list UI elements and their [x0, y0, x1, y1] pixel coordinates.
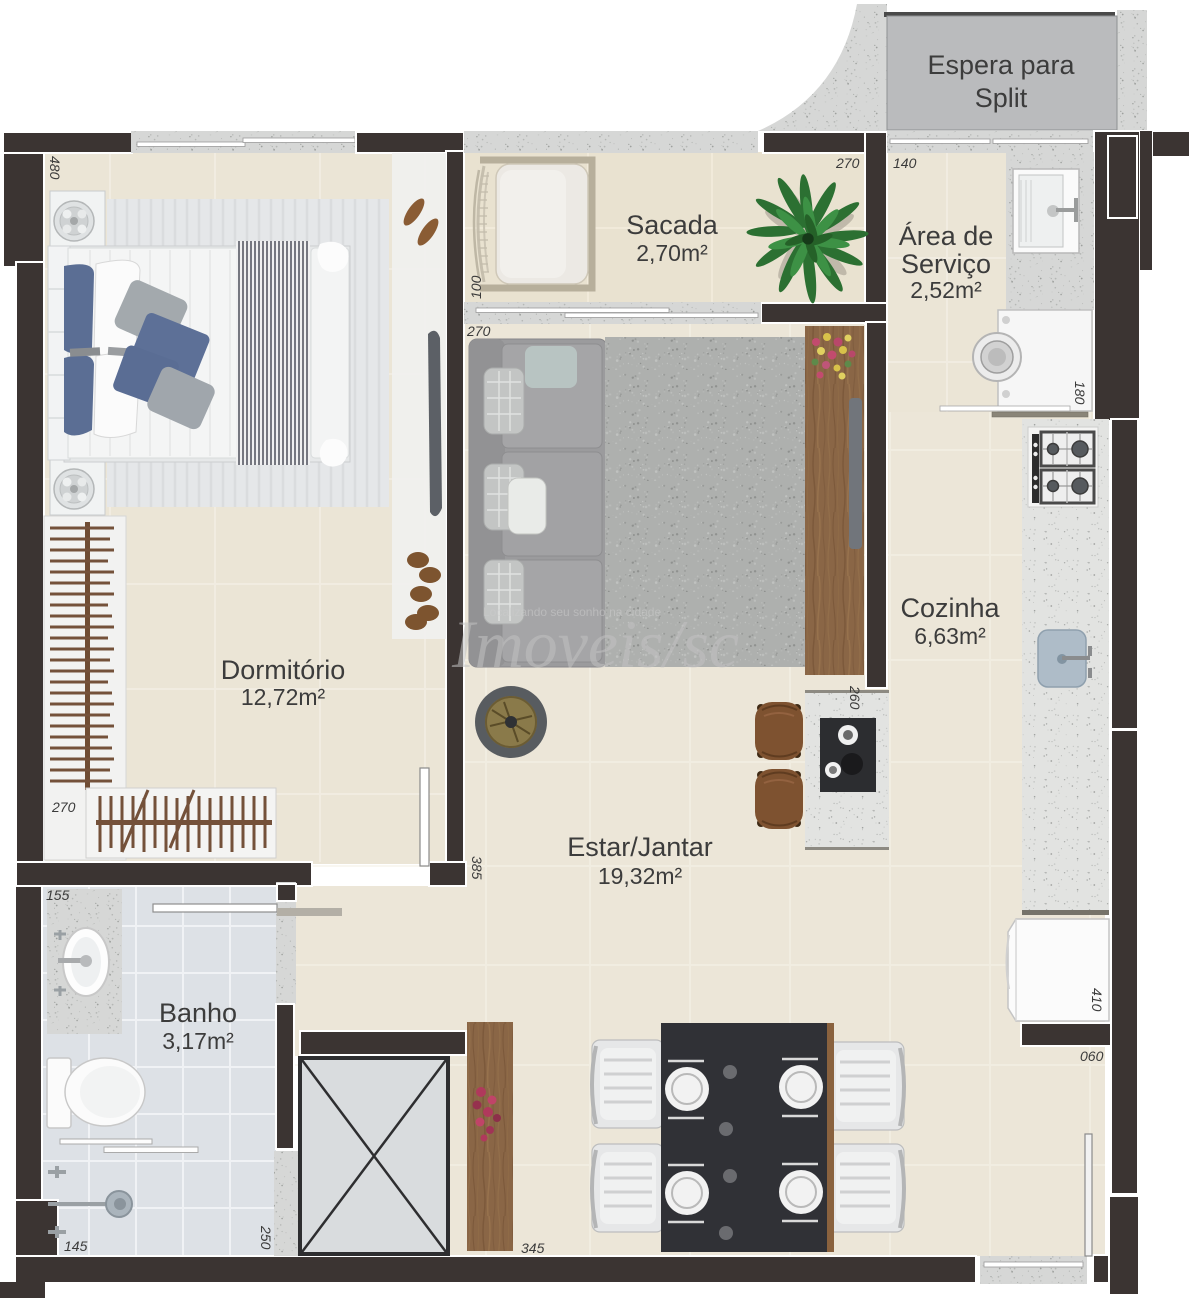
svg-text:19,32m²: 19,32m²	[598, 863, 683, 889]
svg-text:410: 410	[1089, 988, 1105, 1012]
svg-text:Split: Split	[975, 83, 1028, 113]
svg-text:100: 100	[468, 275, 484, 299]
svg-text:260: 260	[847, 685, 863, 710]
svg-text:2,70m²: 2,70m²	[636, 240, 708, 266]
svg-text:Serviço: Serviço	[901, 249, 991, 279]
svg-text:Localizando seu sonho na cidad: Localizando seu sonho na cidade	[483, 605, 661, 619]
svg-text:180: 180	[1072, 381, 1088, 405]
svg-text:270: 270	[835, 155, 860, 171]
svg-text:270: 270	[466, 323, 491, 339]
svg-text:250: 250	[258, 1225, 274, 1250]
svg-text:Espera para: Espera para	[927, 50, 1075, 80]
svg-text:Banho: Banho	[159, 998, 237, 1028]
svg-text:155: 155	[46, 887, 70, 903]
svg-text:Área de: Área de	[899, 221, 994, 251]
svg-text:145: 145	[64, 1238, 88, 1254]
svg-text:Cozinha: Cozinha	[900, 593, 1000, 623]
svg-text:Dormitório: Dormitório	[221, 655, 346, 685]
svg-text:270: 270	[51, 799, 76, 815]
svg-text:345: 345	[521, 1240, 545, 1256]
svg-text:480: 480	[47, 156, 63, 180]
svg-text:060: 060	[1080, 1048, 1104, 1064]
svg-text:3,17m²: 3,17m²	[162, 1028, 234, 1054]
svg-text:6,63m²: 6,63m²	[914, 623, 986, 649]
svg-text:2,52m²: 2,52m²	[910, 277, 982, 303]
svg-text:385: 385	[469, 856, 485, 880]
svg-text:Sacada: Sacada	[626, 210, 719, 240]
svg-text:140: 140	[893, 155, 917, 171]
svg-text:Estar/Jantar: Estar/Jantar	[567, 832, 713, 862]
svg-text:12,72m²: 12,72m²	[241, 684, 326, 710]
